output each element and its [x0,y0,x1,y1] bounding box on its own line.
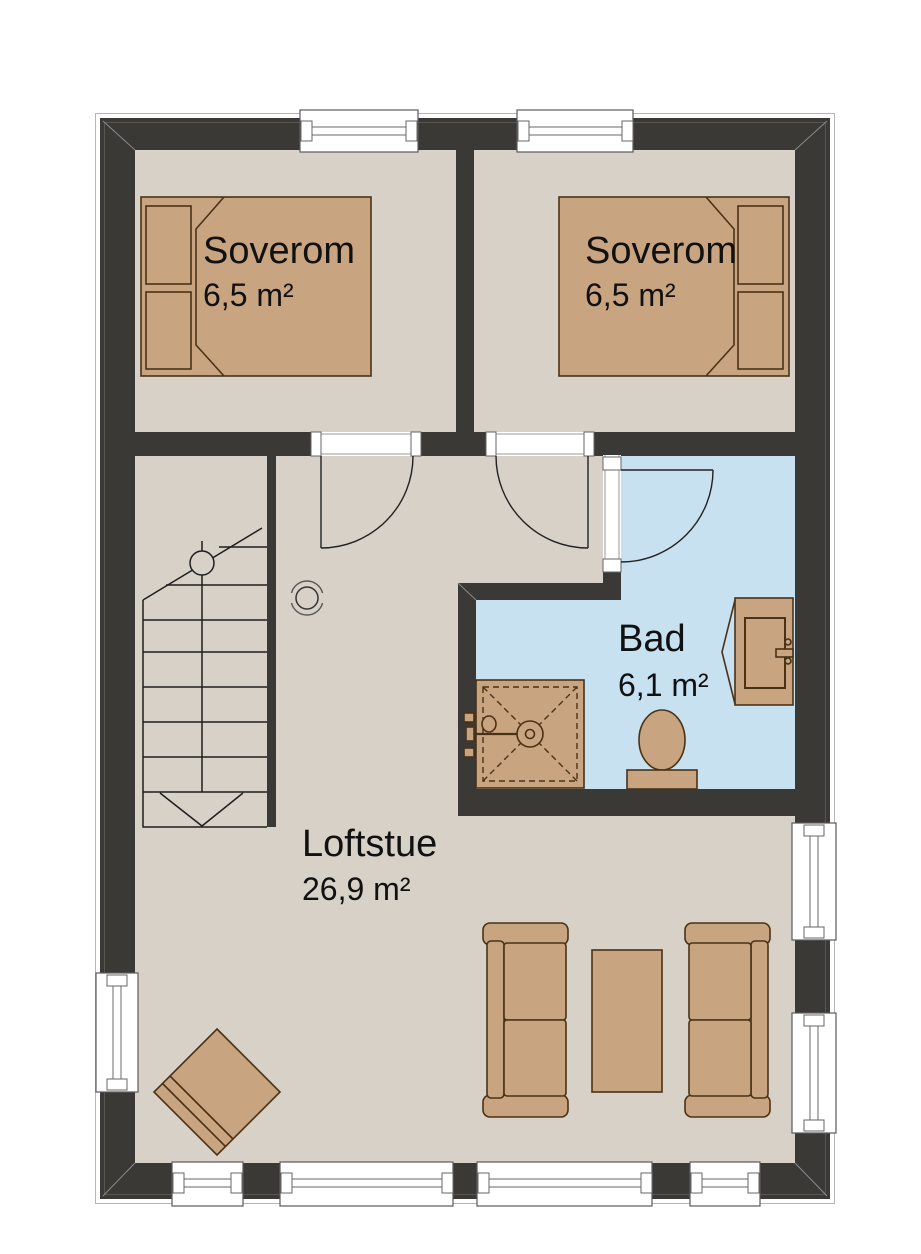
pillow [738,292,783,369]
window-right-1 [792,823,836,940]
room-area-soverom-1: 6,5 m² [203,277,294,313]
room-area-soverom-2: 6,5 m² [585,277,676,313]
wall-bath-notch [458,583,621,600]
sofa-backrest [751,941,768,1098]
shower-tap [464,748,474,757]
wall-bedroom-hall-3 [594,432,795,456]
window-bottom-4 [690,1162,760,1206]
window-bottom-3 [477,1162,652,1206]
sofa-cushion [504,943,566,1020]
sofa-cushion [689,943,751,1020]
sofa-left [483,923,568,1117]
toilet-bowl [639,710,685,770]
sink-knob [785,639,791,645]
sofa-cushion [504,1020,566,1096]
room-area-loftstue: 26,9 m² [302,871,411,907]
wall-bedroom-hall-2 [421,432,486,456]
window-bottom-2 [280,1162,453,1206]
sofa-backrest [487,941,504,1098]
coffee-table [592,950,662,1092]
room-label-loftstue: Loftstue [302,823,437,865]
toilet-tank [627,770,697,789]
shower [464,680,584,788]
room-label-bad: Bad [618,618,686,660]
wall-stair-side [267,432,276,827]
window-left [96,973,138,1092]
wall-bath-left [458,583,476,816]
window-right-2 [792,1013,836,1133]
wall-bedroom-hall-1 [135,432,311,456]
floor-plan-drawing: Soverom 6,5 m² Soverom 6,5 m² Bad 6,1 m²… [0,0,921,1254]
stair-break-circle [190,551,214,575]
shower-mixer [466,727,474,741]
shower-head [482,716,496,732]
window-top-1 [300,110,418,152]
floor-plan: Soverom 6,5 m² Soverom 6,5 m² Bad 6,1 m²… [0,0,921,1254]
shower-tap [464,713,474,722]
room-label-soverom-1: Soverom [203,230,355,272]
sink-faucet [776,649,793,657]
wall-bedroom-divider [456,150,474,432]
pillow [738,206,783,284]
window-bottom-1 [172,1162,243,1206]
window-top-2 [517,110,633,152]
room-area-bad: 6,1 m² [618,667,709,703]
sink-knob [785,658,791,664]
wall-bath-bottom [458,789,830,816]
room-label-soverom-2: Soverom [585,230,737,272]
sofa-right [685,923,770,1117]
sofa-cushion [689,1020,751,1096]
pillow [146,206,191,284]
pillow [146,292,191,369]
